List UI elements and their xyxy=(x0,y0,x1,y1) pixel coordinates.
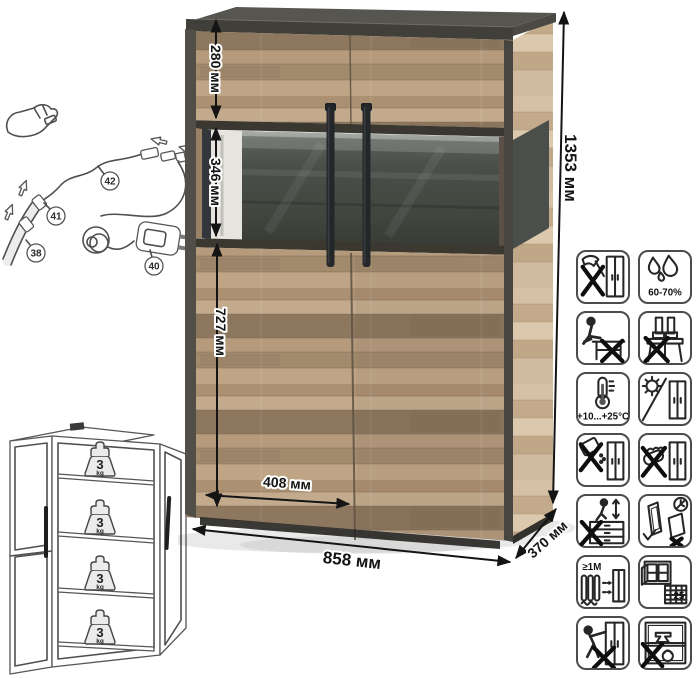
care-icon-heat-distance: ≥1M xyxy=(576,555,630,609)
care-icons-grid: 60-70% xyxy=(576,250,692,670)
no-standing-icon xyxy=(640,313,690,363)
side-glass-band xyxy=(513,120,549,249)
svg-text:kg: kg xyxy=(96,528,104,535)
no-sharp-tools-icon xyxy=(578,252,628,302)
no-sunlight-icon xyxy=(640,374,690,424)
care-icon-no-abrasive-cleaners xyxy=(576,433,630,487)
care-icon-transport-upright xyxy=(638,494,692,548)
no-sitting-icon xyxy=(578,313,628,363)
temperature-icon: +10...+25°C xyxy=(578,374,628,424)
no-abrasive-cleaners-icon xyxy=(578,435,628,485)
acclimatize-days: 25 xyxy=(673,591,684,602)
humidity-icon: 60-70% xyxy=(640,252,690,302)
care-icon-temperature: +10...+25°C xyxy=(576,372,630,426)
dim-lower-section: 727 мм xyxy=(213,308,229,356)
care-icon-no-climbing xyxy=(576,494,630,548)
cabinet-side-panel xyxy=(513,18,553,543)
no-abrasive-sponge-icon xyxy=(640,435,690,485)
no-dragging-icon xyxy=(578,618,628,668)
part-label-40: 40 xyxy=(148,262,160,273)
care-icon-no-abrasive-sponge xyxy=(638,433,692,487)
shelf-load-diagram: 3 kg 3 kg 3 kg 3 kg xyxy=(0,418,195,678)
temperature-value: +10...+25°C xyxy=(578,411,628,422)
care-icon-no-dragging xyxy=(576,616,630,670)
care-icon-no-overload xyxy=(638,616,692,670)
care-icon-no-standing xyxy=(638,311,692,365)
svg-text:kg: kg xyxy=(96,584,104,591)
product-infographic: 42 41 38 40 xyxy=(0,0,700,678)
cabinet-photo xyxy=(185,7,556,549)
care-icon-no-sunlight xyxy=(638,372,692,426)
distance-value: ≥1M xyxy=(582,562,601,573)
care-icon-ventilation: 25 xyxy=(638,555,692,609)
ventilation-icon: 25 xyxy=(640,557,690,607)
cable-kit-diagram: 42 41 38 40 xyxy=(0,100,200,285)
part-label-42: 42 xyxy=(104,177,116,188)
dim-door-width: 408 мм xyxy=(263,473,312,492)
heat-distance-icon: ≥1M xyxy=(578,557,628,607)
svg-text:kg: kg xyxy=(96,470,104,477)
dim-top-section: 280 мм xyxy=(208,45,224,93)
glass-section xyxy=(196,128,505,246)
dim-total-height: 1353 мм xyxy=(561,134,580,202)
hand-icon xyxy=(7,105,58,137)
humidity-value: 60-70% xyxy=(648,288,682,299)
care-icon-no-sharp-tools xyxy=(576,250,630,304)
care-icon-no-sitting xyxy=(576,311,630,365)
part-label-41: 41 xyxy=(50,212,62,223)
transport-upright-icon xyxy=(640,496,690,546)
svg-text:kg: kg xyxy=(96,638,104,645)
no-overload-icon xyxy=(640,618,690,668)
part-label-38: 38 xyxy=(30,249,42,260)
power-adapter xyxy=(83,162,190,258)
connector-pair xyxy=(42,135,196,201)
no-climbing-icon xyxy=(578,496,628,546)
part-callouts: 42 41 38 40 xyxy=(26,166,163,275)
care-icon-humidity: 60-70% xyxy=(638,250,692,304)
cabinet-render: 280 мм 346 мм 727 мм 408 мм 858 мм 370 м… xyxy=(178,0,600,600)
dim-glass-section: 346 мм xyxy=(208,158,224,206)
